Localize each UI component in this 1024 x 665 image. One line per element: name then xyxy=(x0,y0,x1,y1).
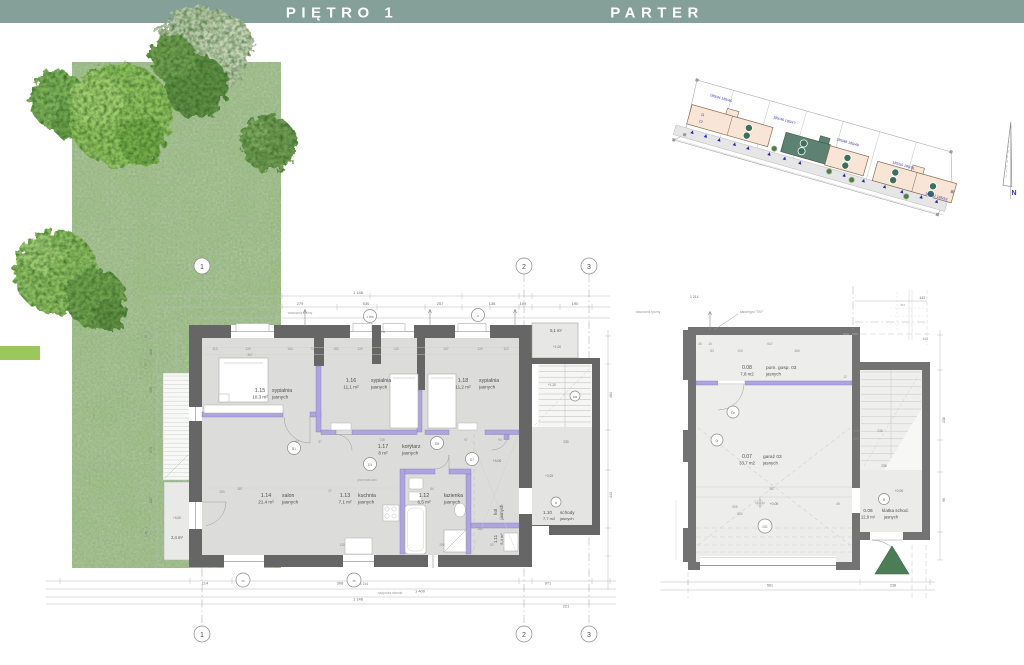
svg-text:96: 96 xyxy=(942,498,946,502)
svg-text:jasnych: jasnych xyxy=(765,372,781,377)
svg-text:279: 279 xyxy=(297,301,304,306)
svg-text:280: 280 xyxy=(477,527,483,531)
svg-text:12,9 m²: 12,9 m² xyxy=(861,515,876,520)
svg-text:971: 971 xyxy=(545,581,552,586)
svg-text:33,7 m2: 33,7 m2 xyxy=(739,461,755,466)
svg-text:2: 2 xyxy=(522,632,526,639)
svg-text:B: B xyxy=(145,530,148,535)
svg-text:1.14: 1.14 xyxy=(261,493,272,499)
svg-text:sypialnia: sypialnia xyxy=(371,378,391,384)
svg-text:236: 236 xyxy=(881,464,887,468)
svg-text:10: 10 xyxy=(708,342,712,346)
svg-text:113: 113 xyxy=(503,347,508,351)
svg-text:1: 1 xyxy=(200,264,204,271)
svg-text:11,2 m²: 11,2 m² xyxy=(455,385,471,390)
svg-text:287: 287 xyxy=(149,497,153,503)
svg-text:735: 735 xyxy=(379,438,385,442)
svg-text:505: 505 xyxy=(732,505,738,509)
svg-text:3: 3 xyxy=(587,264,591,271)
svg-text:2,4 m²: 2,4 m² xyxy=(171,535,183,540)
svg-text:130: 130 xyxy=(339,543,345,547)
svg-text:97: 97 xyxy=(464,438,468,442)
svg-text:C: C xyxy=(145,362,148,367)
svg-text:N: N xyxy=(1011,190,1016,197)
svg-text:m: m xyxy=(353,579,356,583)
svg-text:308: 308 xyxy=(337,581,344,586)
svg-text:443: 443 xyxy=(609,492,613,498)
svg-text:pom. gosp. 03: pom. gosp. 03 xyxy=(766,365,797,371)
svg-text:27: 27 xyxy=(328,489,332,493)
svg-text:0.08: 0.08 xyxy=(742,365,752,371)
svg-text:sypialnia: sypialnia xyxy=(479,378,499,384)
svg-text:+0,05: +0,05 xyxy=(770,502,779,506)
svg-text:D: D xyxy=(145,334,148,339)
svg-text:37: 37 xyxy=(318,440,322,444)
svg-text:+0,00: +0,00 xyxy=(173,516,181,520)
svg-text:280: 280 xyxy=(219,490,225,494)
svg-text:1.13: 1.13 xyxy=(340,493,351,499)
svg-text:d: d xyxy=(555,501,557,505)
svg-text:464: 464 xyxy=(900,303,905,307)
svg-text:0.06: 0.06 xyxy=(863,508,873,514)
svg-text:120: 120 xyxy=(245,347,251,351)
svg-text:jasnych: jasnych xyxy=(762,461,778,466)
svg-text:230: 230 xyxy=(563,440,569,444)
svg-text:45: 45 xyxy=(836,502,840,506)
svg-text:140: 140 xyxy=(393,347,399,351)
svg-text:włazownik tyczny: włazownik tyczny xyxy=(636,310,661,314)
svg-text:238: 238 xyxy=(890,584,896,588)
svg-text:370: 370 xyxy=(149,447,153,453)
svg-text:550: 550 xyxy=(737,512,743,516)
svg-text:DB: DB xyxy=(573,395,577,399)
svg-text:2: 2 xyxy=(522,264,526,271)
svg-text:1.15: 1.15 xyxy=(255,388,266,394)
svg-text:97: 97 xyxy=(295,440,299,444)
svg-text:nadproża rdzenie: nadproża rdzenie xyxy=(378,591,403,595)
svg-text:łazienka: łazienka xyxy=(444,493,463,499)
svg-text:221: 221 xyxy=(563,604,570,609)
svg-text:1 258: 1 258 xyxy=(367,315,374,319)
svg-text:238: 238 xyxy=(877,429,883,433)
svg-text:200: 200 xyxy=(853,437,859,441)
svg-text:kanał typu "TB?": kanał typu "TB?" xyxy=(740,310,764,314)
svg-text:jasnych: jasnych xyxy=(281,500,299,506)
svg-text:DG: DG xyxy=(762,525,767,529)
svg-text:279: 279 xyxy=(407,444,413,448)
svg-text:367: 367 xyxy=(247,353,253,357)
svg-text:jasnych: jasnych xyxy=(478,385,496,391)
svg-text:jasnych: jasnych xyxy=(883,515,899,520)
svg-text:schody: schody xyxy=(560,510,575,515)
svg-text:włazownik tyczny: włazownik tyczny xyxy=(288,311,313,315)
svg-text:192: 192 xyxy=(333,347,339,351)
svg-text:1.18: 1.18 xyxy=(458,378,469,384)
svg-text:52: 52 xyxy=(490,543,494,547)
svg-text:+1,20: +1,20 xyxy=(548,383,556,387)
svg-text:120: 120 xyxy=(357,347,363,351)
svg-text:260: 260 xyxy=(149,349,153,355)
svg-text:1.11: 1.11 xyxy=(493,534,498,543)
svg-text:10,3 m²: 10,3 m² xyxy=(252,395,268,400)
svg-text:B1: B1 xyxy=(292,447,296,451)
svg-text:238: 238 xyxy=(942,417,946,423)
svg-text:94: 94 xyxy=(498,438,502,442)
svg-text:jasnych: jasnych xyxy=(443,500,461,506)
svg-text:72: 72 xyxy=(310,347,314,351)
svg-text:5,4 m²: 5,4 m² xyxy=(499,533,504,545)
svg-text:138: 138 xyxy=(489,301,496,306)
svg-text:1.12: 1.12 xyxy=(419,493,430,499)
svg-text:1 214: 1 214 xyxy=(690,295,699,299)
svg-text:+1,00: +1,00 xyxy=(553,345,561,349)
svg-text:1: 1 xyxy=(200,632,204,639)
svg-text:plan wod-kan: plan wod-kan xyxy=(358,478,377,482)
svg-text:367: 367 xyxy=(769,487,775,491)
svg-text:jasnych: jasnych xyxy=(357,500,375,506)
svg-text:1.10: 1.10 xyxy=(543,510,552,515)
svg-text:6,5 m²: 6,5 m² xyxy=(417,500,430,505)
svg-text:109: 109 xyxy=(520,301,527,306)
svg-text:+0,00: +0,00 xyxy=(895,489,904,493)
svg-text:jasnych: jasnych xyxy=(401,451,419,457)
svg-text:100: 100 xyxy=(737,349,743,353)
svg-text:m: m xyxy=(242,579,245,583)
svg-text:164: 164 xyxy=(287,347,293,351)
svg-text:84: 84 xyxy=(430,487,434,491)
svg-text:108: 108 xyxy=(853,429,859,433)
svg-text:garaż 03: garaż 03 xyxy=(763,454,782,460)
svg-text:530: 530 xyxy=(363,301,370,306)
svg-text:8 m²: 8 m² xyxy=(378,451,388,456)
svg-text:1.17: 1.17 xyxy=(378,444,389,450)
svg-text:jasnych: jasnych xyxy=(559,516,574,521)
svg-text:sypialnia: sypialnia xyxy=(272,388,292,394)
svg-text:1 148: 1 148 xyxy=(353,290,364,295)
svg-text:1 148: 1 148 xyxy=(353,597,364,602)
svg-text:366: 366 xyxy=(794,349,800,353)
svg-text:443: 443 xyxy=(919,296,925,300)
svg-text:+3,05: +3,05 xyxy=(493,459,502,463)
svg-text:120: 120 xyxy=(477,347,483,351)
svg-text:1 400: 1 400 xyxy=(415,589,426,594)
svg-text:443: 443 xyxy=(922,337,928,341)
svg-text:83: 83 xyxy=(710,349,714,353)
svg-text:5,1 m²: 5,1 m² xyxy=(550,328,562,333)
svg-text:salon: salon xyxy=(282,493,295,499)
svg-text:147: 147 xyxy=(443,347,449,351)
svg-text:11,1 m²: 11,1 m² xyxy=(343,385,359,390)
svg-text:jasnych: jasnych xyxy=(499,504,504,520)
svg-text:D7: D7 xyxy=(470,458,474,462)
svg-text:464: 464 xyxy=(609,392,613,398)
svg-text:7,8 m2: 7,8 m2 xyxy=(740,372,754,377)
svg-text:jasnych: jasnych xyxy=(370,385,388,391)
svg-text:113: 113 xyxy=(212,347,217,351)
svg-text:PARTER: PARTER xyxy=(610,5,704,22)
svg-text:12: 12 xyxy=(843,375,847,379)
svg-text:257: 257 xyxy=(437,301,444,306)
svg-text:1.16: 1.16 xyxy=(346,378,357,384)
svg-text:+3,05: +3,05 xyxy=(545,474,553,478)
svg-text:495: 495 xyxy=(149,387,153,393)
svg-text:D1: D1 xyxy=(368,463,372,467)
svg-text:jasnych: jasnych xyxy=(271,395,289,401)
svg-text:387: 387 xyxy=(237,487,243,491)
svg-text:7,7 m2: 7,7 m2 xyxy=(543,516,556,521)
svg-text:190: 190 xyxy=(572,301,579,306)
svg-text:647: 647 xyxy=(767,342,773,346)
svg-text:36: 36 xyxy=(698,342,702,346)
svg-text:114: 114 xyxy=(202,581,209,586)
svg-text:21,4 m²: 21,4 m² xyxy=(258,500,274,505)
svg-text:kuchnia: kuchnia xyxy=(358,493,376,499)
svg-text:0.07: 0.07 xyxy=(742,454,752,460)
svg-text:B: B xyxy=(883,498,885,502)
svg-text:PIĘTRO 1: PIĘTRO 1 xyxy=(286,5,398,22)
svg-text:D5: D5 xyxy=(435,442,439,446)
svg-text:7,1 m²: 7,1 m² xyxy=(338,500,351,505)
svg-text:1 214: 1 214 xyxy=(360,582,368,586)
svg-text:3: 3 xyxy=(587,632,591,639)
svg-text:klatka schod.: klatka schod. xyxy=(882,508,909,513)
svg-text:208: 208 xyxy=(439,543,445,547)
svg-text:561: 561 xyxy=(767,584,773,588)
